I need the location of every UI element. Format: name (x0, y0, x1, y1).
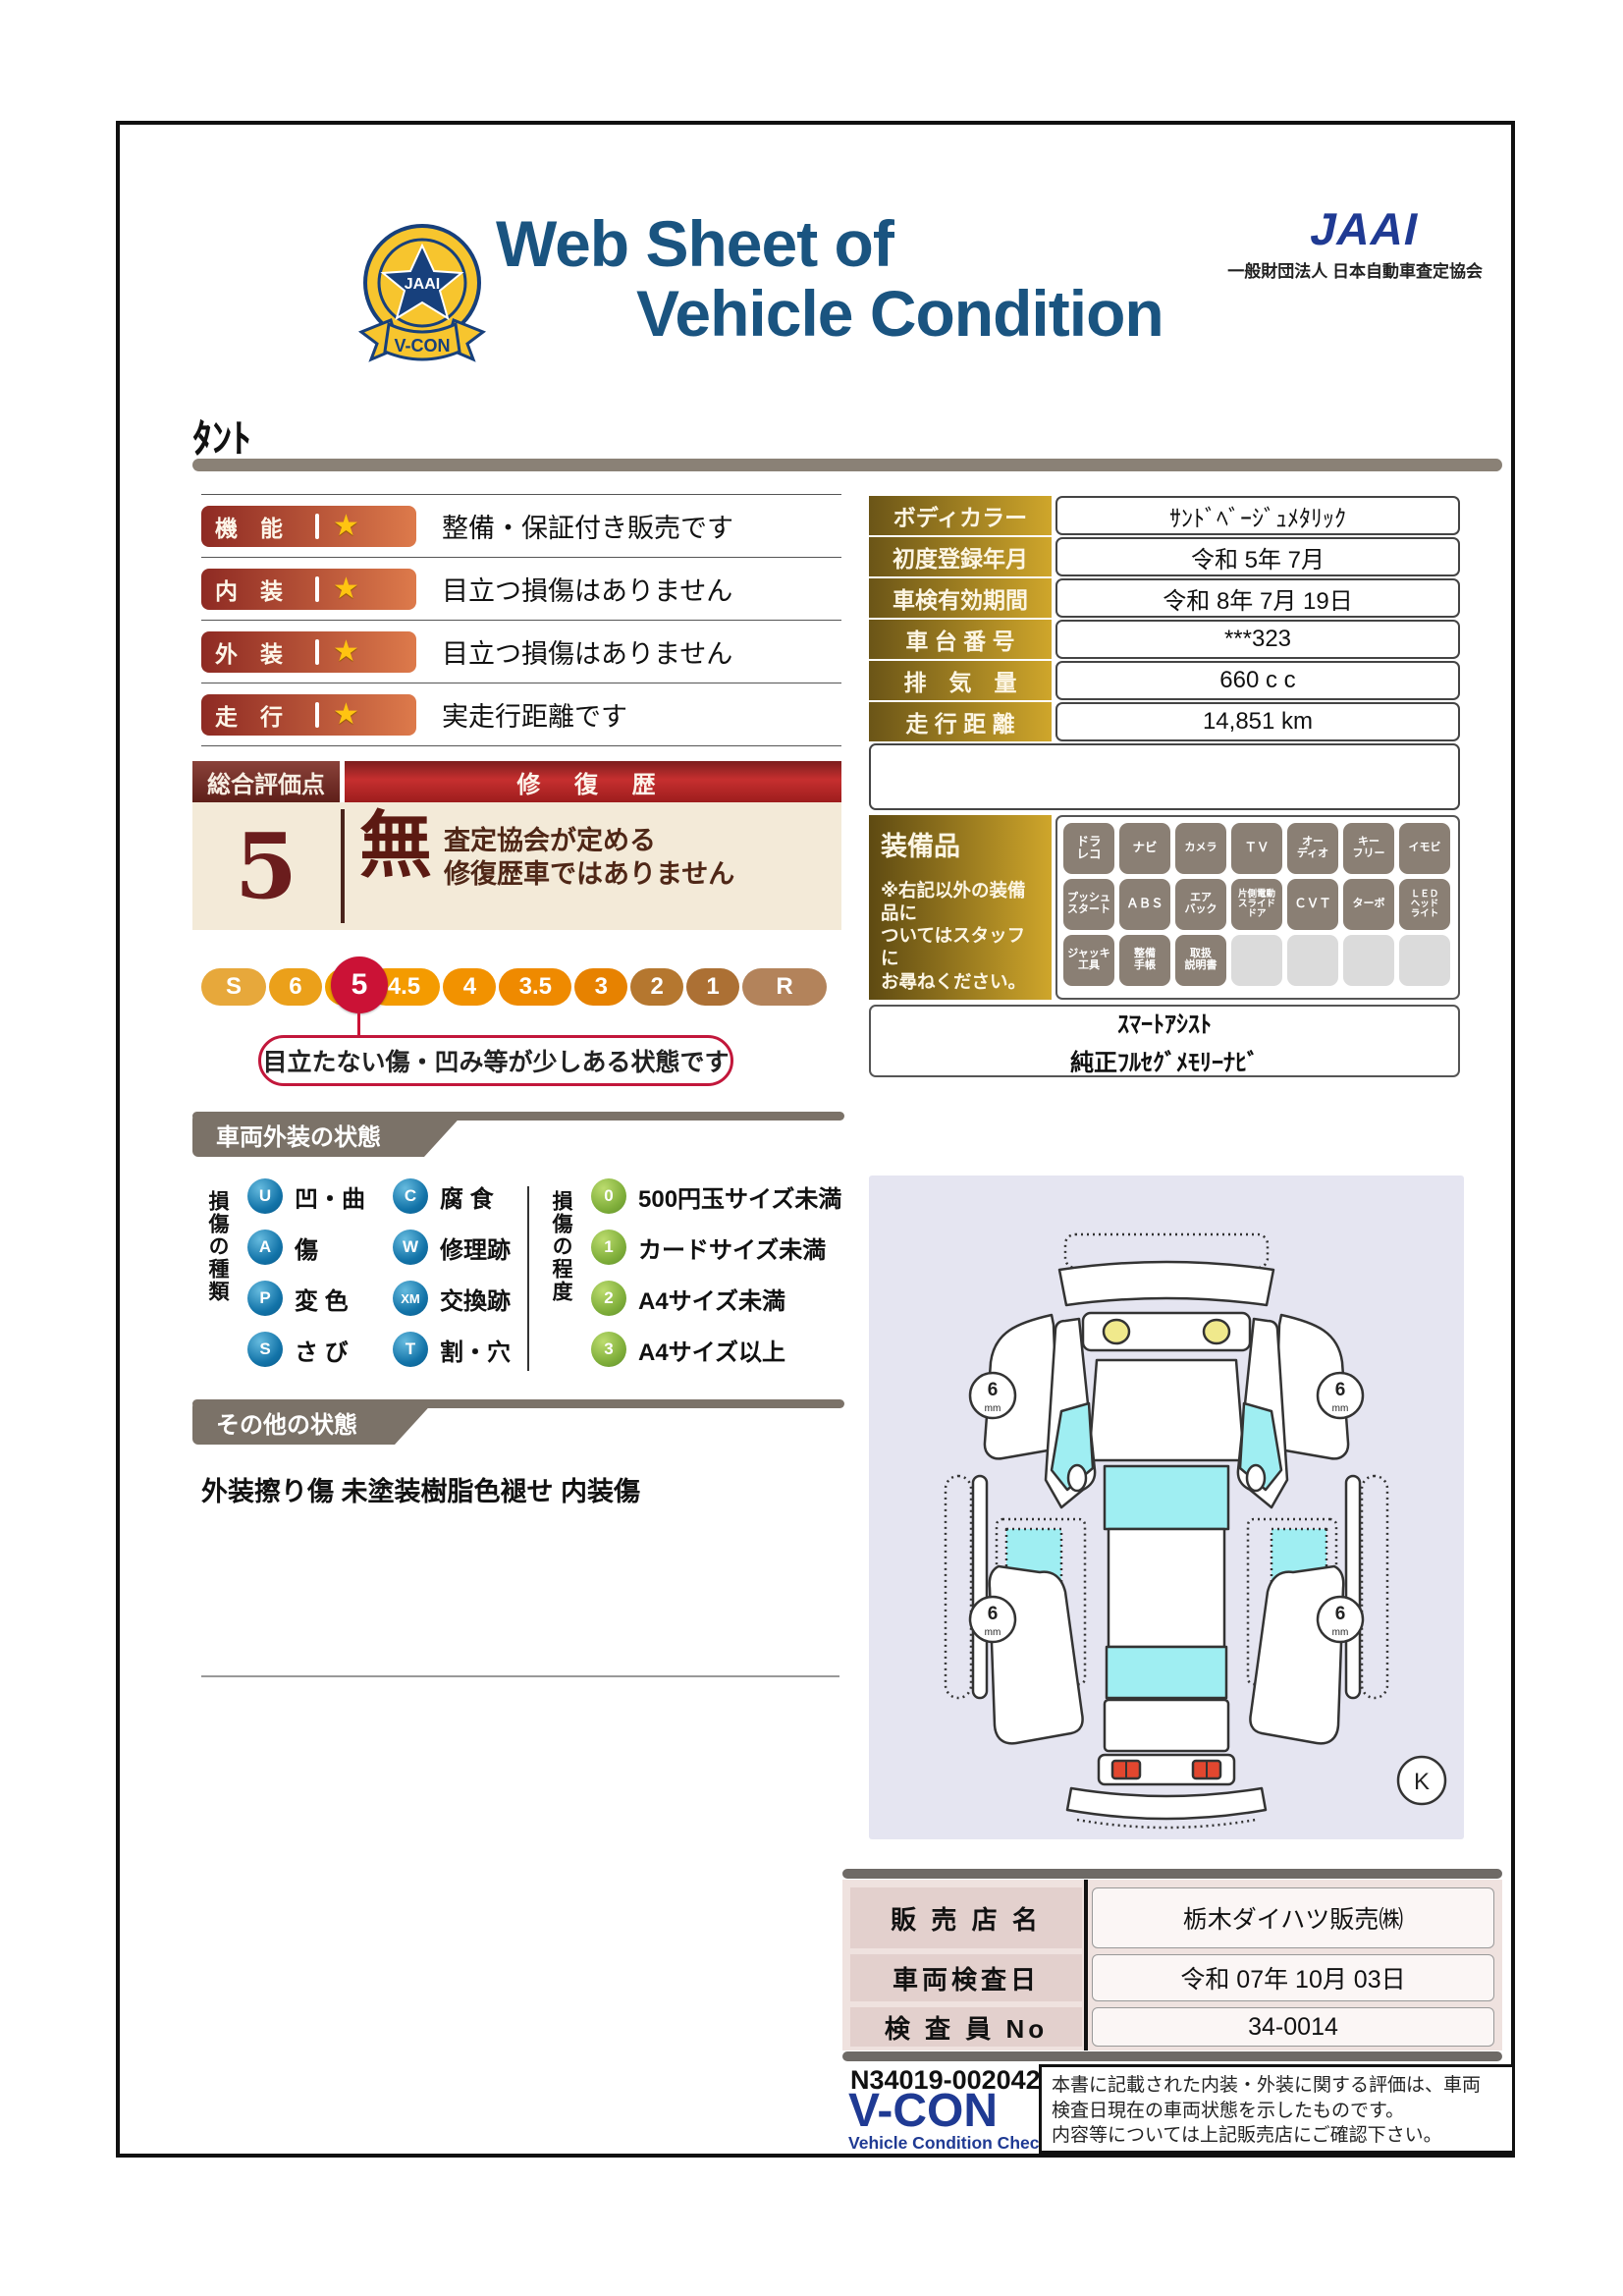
svg-text:6: 6 (1335, 1380, 1346, 1400)
type-circle-c: C (393, 1178, 428, 1214)
other-state-line (201, 1675, 839, 1677)
svg-text:mm: mm (985, 1627, 1001, 1638)
rear-quarter-panel (990, 1566, 1083, 1743)
sales-label-dealer: 販 売 店 名 (850, 1887, 1082, 1948)
vehicle-condition-sheet: JAAI V-CON Web Sheet of Vehicle Conditio… (0, 0, 1623, 2296)
info-value-mileage: 14,851 km (1055, 702, 1460, 741)
vcon-logo: V-CON (848, 2088, 998, 2135)
info-label-first-reg: 初度登録年月 (869, 537, 1052, 576)
badge-empty (1399, 935, 1450, 986)
info-empty-row (869, 743, 1460, 810)
badge-cvt: ＣＶＴ (1287, 879, 1338, 930)
star-icon: ★ (333, 509, 359, 543)
legend-degree-2: 2 A4サイズ未満 (591, 1281, 785, 1316)
svg-text:6: 6 (988, 1380, 999, 1400)
rear-dotted-outline (1077, 1820, 1256, 1828)
badge-owners-manual: 取扱 説明書 (1175, 935, 1226, 986)
rating-pill: 走 行 ★ (201, 694, 416, 736)
badge-turbo: ターボ (1343, 879, 1394, 930)
degree-circle-0: 0 (591, 1178, 626, 1214)
badge-airbag: エア バック (1175, 879, 1226, 930)
info-value-body-color: ｻﾝﾄﾞﾍﾞｰｼﾞｭﾒﾀﾘｯｸ (1055, 496, 1460, 535)
rating-row-mileage: 走 行 ★ 実走行距離です (201, 683, 841, 746)
marker-pointer-line (357, 1013, 360, 1037)
badge-empty (1231, 935, 1282, 986)
right-side-panels (1238, 1315, 1387, 1743)
vcon-emblem-icon: JAAI V-CON (342, 222, 503, 377)
badge-keyfree: キー フリー (1343, 823, 1394, 874)
other-section-tab: その他の状態 (192, 1399, 436, 1445)
exterior-tab-label: 車両外装の状態 (216, 1118, 381, 1152)
pill-divider (315, 514, 319, 539)
overall-score: 5 (192, 807, 340, 925)
legend-type-corrosion: C 腐 食 (393, 1178, 494, 1214)
rear-window-glass (1107, 1647, 1226, 1698)
info-label-mileage: 走 行 距 離 (869, 702, 1052, 741)
badge-power-slide-door: 片側電動 スライド ドア (1231, 879, 1282, 930)
overall-header: 総合評価点 修 復 歴 (192, 761, 841, 802)
side-mirror (1068, 1465, 1086, 1491)
badge-empty (1343, 935, 1394, 986)
badge-push-start: プッシュ スタート (1063, 879, 1114, 930)
damage-degree-label: 損傷の程度 (546, 1190, 575, 1303)
sales-label-inspector-no: 検 査 員 No (850, 2007, 1082, 2047)
scale-seg-3: 3 (574, 968, 627, 1006)
jaai-subtitle: 一般財団法人 日本自動車査定協会 (1166, 257, 1483, 282)
scale-seg-r: R (742, 968, 827, 1006)
rating-row-interior: 内 装 ★ 目立つ損傷はありません (201, 557, 841, 620)
equipment-badge-grid: ドラ レコ ナビ カメラ ＴＶ オー ディオ キー フリー イモビ プッシュ ス… (1063, 823, 1454, 986)
vehicle-name: ﾀﾝﾄ (192, 407, 251, 464)
score-callout: 目立たない傷・凹み等が少しある状態です (258, 1035, 733, 1086)
rating-label: 機 能 (215, 510, 305, 543)
rating-text: 目立つ損傷はありません (442, 632, 732, 671)
type-circle-p: P (247, 1281, 283, 1316)
pill-divider (315, 576, 319, 602)
sales-value-inspection-date: 令和 07年 10月 03日 (1092, 1954, 1494, 2001)
sheet-title-line1: Web Sheet of (496, 206, 893, 281)
type-circle-t: T (393, 1332, 428, 1367)
sheet-title-line2: Vehicle Condition (636, 276, 1163, 351)
sales-value-inspector-no: 34-0014 (1092, 2007, 1494, 2047)
exterior-section-tab: 車両外装の状態 (192, 1112, 465, 1157)
disclaimer-note: 本書に記載された内装・外装に関する評価は、車両 検査日現在の車両状態を示したもの… (1039, 2064, 1515, 2154)
type-circle-w: W (393, 1230, 428, 1265)
sales-label-inspection-date: 車両検査日 (850, 1954, 1082, 2001)
rating-label: 内 装 (215, 573, 305, 606)
body-divider (341, 809, 345, 923)
headlight-right-icon (1204, 1320, 1229, 1343)
sales-table-top-bar (842, 1869, 1502, 1879)
type-circle-a: A (247, 1230, 283, 1265)
overall-score-header: 総合評価点 (192, 761, 340, 802)
car-diagram-svg: 6 mm 6 mm 6 mm 6 mm K (869, 1175, 1464, 1839)
type-circle-s: S (247, 1332, 283, 1367)
side-sill (973, 1476, 987, 1698)
degree-circle-1: 1 (591, 1230, 626, 1265)
repair-flag: 無 (359, 809, 432, 882)
other-tab-label: その他の状態 (216, 1405, 357, 1440)
extra-equipment-line2: 純正ﾌﾙｾｸﾞﾒﾓﾘｰﾅﾋﾞ (1070, 1043, 1259, 1077)
info-label-displacement: 排 気 量 (869, 661, 1052, 700)
legend-type-crack: T 割・穴 (393, 1332, 511, 1367)
windshield (1089, 1360, 1244, 1460)
scale-seg-1: 1 (686, 968, 739, 1006)
degree-circle-2: 2 (591, 1281, 626, 1316)
svg-text:JAAI: JAAI (405, 276, 440, 293)
info-value-chassis-no: ***323 (1055, 620, 1460, 659)
pill-divider (315, 639, 319, 665)
jaai-logo: JAAI (1306, 202, 1424, 255)
other-state-text: 外装擦り傷 未塗装樹脂色褪せ 内装傷 (201, 1470, 640, 1508)
rating-row-function: 機 能 ★ 整備・保証付き販売です (201, 494, 841, 557)
legend-degree-0: 0 500円玉サイズ未満 (591, 1178, 841, 1214)
rating-text: 目立つ損傷はありません (442, 570, 732, 608)
info-label-chassis-no: 車 台 番 号 (869, 620, 1052, 659)
badge-abs: ＡＢＳ (1119, 879, 1170, 930)
rating-pill: 内 装 ★ (201, 569, 416, 610)
pill-divider (315, 702, 319, 728)
scale-seg-2: 2 (630, 968, 683, 1006)
info-label-inspection: 車検有効期間 (869, 578, 1052, 618)
legend-type-discolor: P 変 色 (247, 1281, 349, 1316)
badge-empty (1287, 935, 1338, 986)
repair-description: 査定協会が定める 修復歴車ではありません (444, 825, 734, 892)
info-label-body-color: ボディカラー (869, 496, 1052, 535)
svg-text:6: 6 (988, 1604, 999, 1624)
rating-text: 実走行距離です (442, 695, 627, 734)
equipment-panel: 装備品 ※右記以外の装備品に ついてはスタッフに お尋ねください。 (869, 815, 1052, 1000)
car-damage-diagram: 6 mm 6 mm 6 mm 6 mm K (869, 1175, 1464, 1839)
badge-immobilizer: イモビ (1399, 823, 1450, 874)
roof-panel (1109, 1529, 1224, 1647)
type-circle-u: U (247, 1178, 283, 1214)
sales-table-bottom-bar (842, 2051, 1502, 2061)
extra-equipment-line1: ｽﾏｰﾄｱｼｽﾄ (1117, 1005, 1212, 1039)
badge-service-book: 整備 手帳 (1119, 935, 1170, 986)
rating-label: 走 行 (215, 698, 305, 732)
badge-drive-recorder: ドラ レコ (1063, 823, 1114, 874)
selected-score-marker: 5 (331, 957, 388, 1013)
side-sill-dotted (946, 1476, 971, 1698)
rating-pill: 機 能 ★ (201, 506, 416, 547)
badge-audio: オー ディオ (1287, 823, 1338, 874)
scale-seg-6: 6 (269, 968, 322, 1006)
scale-seg-s: S (201, 968, 266, 1006)
legend-degree-3: 3 A4サイズ以上 (591, 1332, 785, 1367)
svg-text:mm: mm (985, 1403, 1001, 1414)
legend-degree-1: 1 カードサイズ未満 (591, 1230, 826, 1265)
scale-seg-4: 4 (443, 968, 496, 1006)
extra-equipment-box: ｽﾏｰﾄｱｼｽﾄ 純正ﾌﾙｾｸﾞﾒﾓﾘｰﾅﾋﾞ (869, 1005, 1460, 1077)
legend-divider (527, 1186, 529, 1371)
scale-seg-3-5: 3.5 (499, 968, 571, 1006)
tailgate (1105, 1700, 1228, 1751)
star-icon: ★ (333, 634, 359, 669)
star-icon: ★ (333, 572, 359, 606)
type-circle-xm: XM (393, 1281, 428, 1316)
svg-text:V-CON: V-CON (394, 336, 450, 355)
badge-led-headlight: ＬＥＤ ヘッド ライト (1399, 879, 1450, 930)
rating-pill: 外 装 ★ (201, 631, 416, 673)
svg-text:mm: mm (1332, 1403, 1349, 1414)
divider-bar (192, 459, 1502, 471)
sales-column-divider (1084, 1880, 1088, 2050)
damage-type-label: 損傷の種類 (202, 1190, 232, 1303)
ratings-list: 機 能 ★ 整備・保証付き販売です 内 装 ★ 目立つ損傷はありません 外 装 … (201, 494, 841, 746)
repair-history-header: 修 復 歴 (345, 761, 841, 802)
legend-type-dent: U 凹・曲 (247, 1178, 365, 1214)
legend-type-replaced: XM 交換跡 (393, 1281, 511, 1316)
badge-jack-tools: ジャッキ 工具 (1063, 935, 1114, 986)
star-icon: ★ (333, 697, 359, 732)
info-value-first-reg: 令和 5年 7月 (1055, 537, 1460, 576)
front-bumper (1059, 1262, 1273, 1305)
legend-type-rust: S さ び (247, 1332, 349, 1367)
degree-circle-3: 3 (591, 1332, 626, 1367)
rating-row-exterior: 外 装 ★ 目立つ損傷はありません (201, 620, 841, 683)
front-roof-glass (1105, 1466, 1228, 1529)
info-value-displacement: 660 c c (1055, 661, 1460, 700)
headlight-left-icon (1104, 1320, 1129, 1343)
score-scale-bar: S 6 4.5 4 3.5 3 2 1 R (201, 968, 827, 1006)
legend-type-scratch: A 傷 (247, 1230, 318, 1265)
equipment-note: ※右記以外の装備品に ついてはスタッフに お尋ねください。 (881, 879, 1040, 993)
badge-camera: カメラ (1175, 823, 1226, 874)
svg-text:6: 6 (1335, 1604, 1346, 1624)
badge-navi: ナビ (1119, 823, 1170, 874)
svg-text:mm: mm (1332, 1627, 1349, 1638)
info-value-inspection: 令和 8年 7月 19日 (1055, 578, 1460, 618)
badge-tv: ＴＶ (1231, 823, 1282, 874)
rating-text: 整備・保証付き販売です (442, 507, 733, 545)
equipment-title: 装備品 (881, 825, 999, 863)
legend-type-repair: W 修理跡 (393, 1230, 511, 1265)
rating-label: 外 装 (215, 635, 305, 669)
rear-bumper (1067, 1788, 1266, 1819)
sales-value-dealer: 栃木ダイハツ販売㈱ (1092, 1887, 1494, 1948)
inspector-stamp-letter: K (1414, 1769, 1430, 1795)
